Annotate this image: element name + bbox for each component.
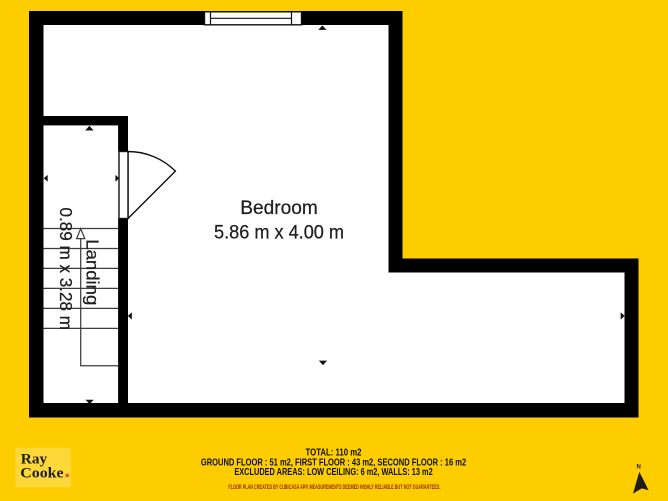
svg-text:Cooke: Cooke (20, 466, 64, 482)
svg-text:Landing: Landing (82, 239, 102, 305)
svg-text:Bedroom: Bedroom (240, 198, 318, 219)
svg-text:N: N (637, 465, 641, 471)
svg-text:FLOOR PLAN CREATED BY CUBICASA: FLOOR PLAN CREATED BY CUBICASA APP. MEAS… (228, 484, 440, 491)
svg-text:EXCLUDED AREAS: LOW CEILING: 6: EXCLUDED AREAS: LOW CEILING: 6 m2, WALLS… (234, 466, 432, 477)
svg-text:5.86 m x 4.00 m: 5.86 m x 4.00 m (214, 223, 344, 244)
svg-text:0.89 m x 3.28 m: 0.89 m x 3.28 m (56, 208, 76, 331)
